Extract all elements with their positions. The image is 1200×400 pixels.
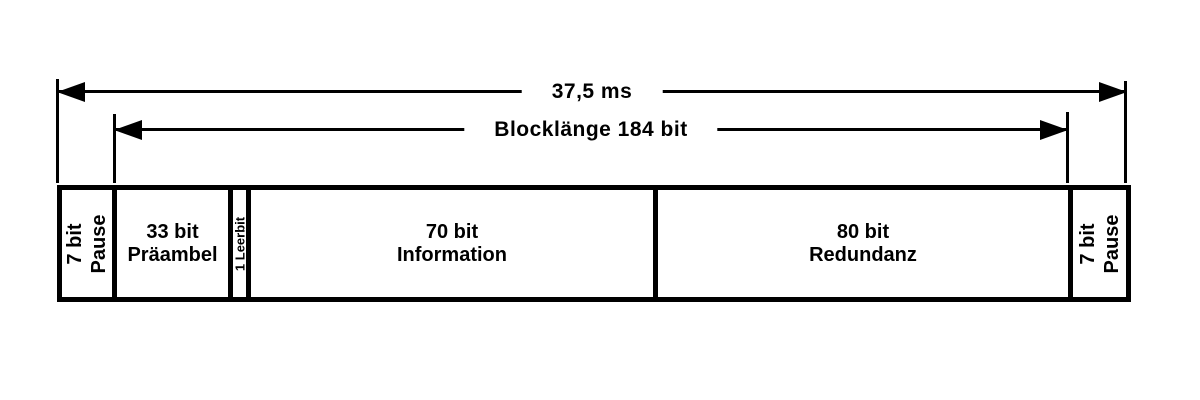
- frame-structure-diagram: 37,5 ms Blocklänge 184 bit 7 bit Pause 3…: [0, 0, 1200, 400]
- segment-leerbit: 1 Leerbit: [233, 190, 251, 297]
- segment-label-line1: 7 bit: [64, 223, 86, 264]
- segment-label-line1: 7 bit: [1077, 223, 1099, 264]
- segment-information: 70 bit Information: [251, 190, 658, 297]
- segment-label-line1: 33 bit: [146, 221, 198, 244]
- segment-label-line1: 1 Leerbit: [232, 216, 247, 270]
- block-length-arrow: Blocklänge 184 bit: [114, 128, 1068, 131]
- segment-label-line2: Information: [397, 244, 507, 267]
- arrowhead-left-icon: [57, 82, 85, 102]
- segment-pause-left: 7 bit Pause: [62, 190, 117, 297]
- frame-bar: 7 bit Pause 33 bit Präambel 1 Leerbit 70…: [57, 185, 1131, 302]
- arrowhead-right-icon: [1099, 82, 1127, 102]
- segment-label-line1: 80 bit: [837, 221, 889, 244]
- extension-line-inner-right: [1066, 112, 1069, 183]
- segment-pause-left-label: 7 bit Pause: [63, 214, 111, 273]
- segment-label-line2: Redundanz: [809, 244, 917, 267]
- arrowhead-right-icon: [1040, 120, 1068, 140]
- extension-line-outer-left: [56, 79, 59, 183]
- segment-label-line2: Pause: [88, 214, 110, 273]
- segment-praeambel: 33 bit Präambel: [117, 190, 233, 297]
- arrowhead-left-icon: [114, 120, 142, 140]
- extension-line-outer-right: [1124, 81, 1127, 183]
- segment-pause-right: 7 bit Pause: [1073, 190, 1126, 297]
- extension-line-inner-left: [113, 114, 116, 183]
- segment-label-line2: Präambel: [127, 244, 217, 267]
- total-duration-label: 37,5 ms: [522, 80, 663, 104]
- segment-label-line1: 70 bit: [426, 221, 478, 244]
- segment-redundanz: 80 bit Redundanz: [658, 190, 1073, 297]
- block-length-label: Blocklänge 184 bit: [464, 118, 717, 142]
- segment-label-line2: Pause: [1101, 214, 1123, 273]
- segment-leerbit-label: 1 Leerbit: [233, 216, 246, 270]
- total-duration-arrow: 37,5 ms: [57, 90, 1127, 93]
- segment-pause-right-label: 7 bit Pause: [1076, 214, 1124, 273]
